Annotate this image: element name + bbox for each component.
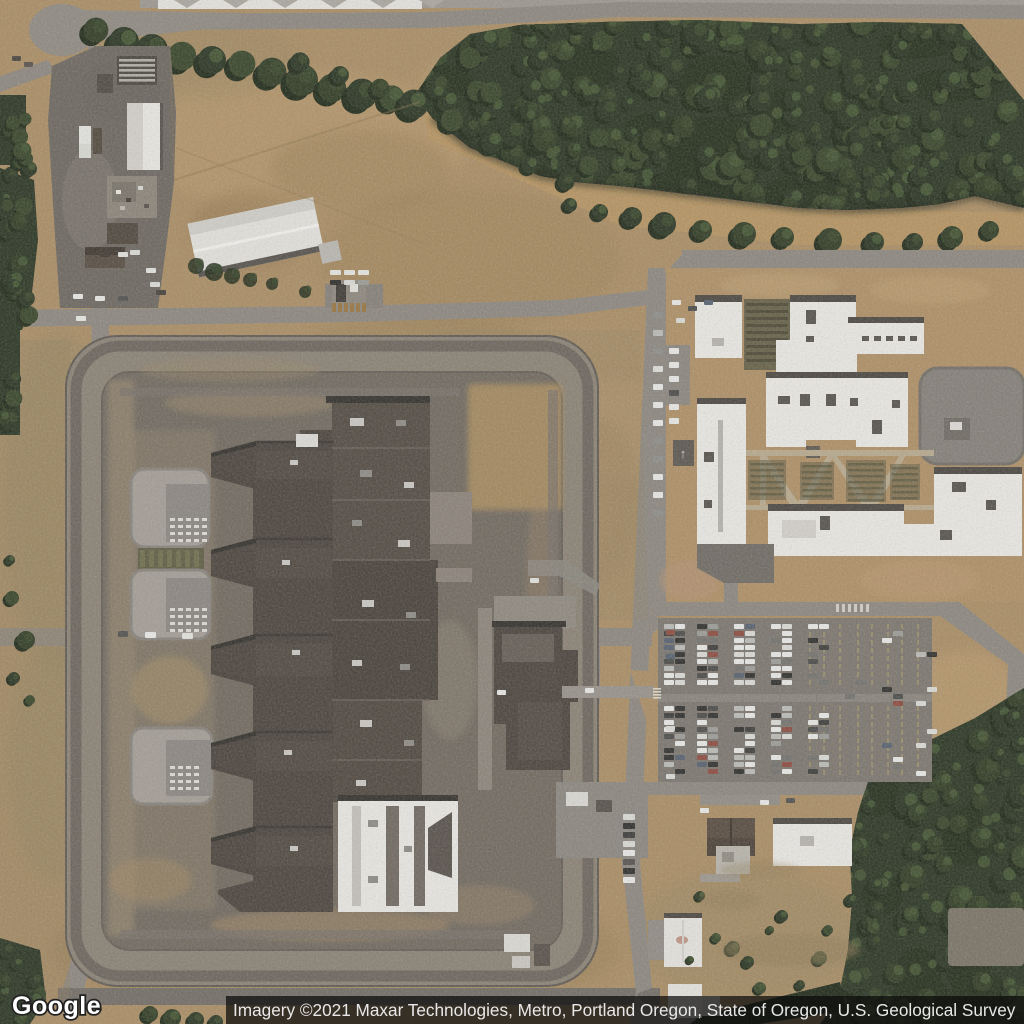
svg-text:Google: Google (12, 992, 101, 1020)
svg-text:Imagery ©2021 Maxar Technologi: Imagery ©2021 Maxar Technologies, Metro,… (233, 1000, 1016, 1020)
